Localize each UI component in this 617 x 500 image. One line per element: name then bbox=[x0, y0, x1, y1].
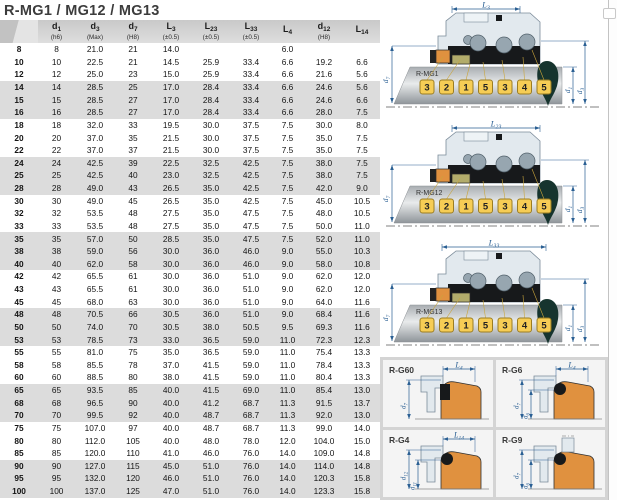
table-row: 606088.58038.041.559.011.080.413.3 bbox=[0, 371, 380, 384]
value-cell: 11.6 bbox=[344, 308, 380, 321]
column-header-L33: L33(±0.5) bbox=[231, 20, 271, 43]
value-cell: 41.2 bbox=[191, 397, 231, 410]
gasket bbox=[440, 384, 450, 400]
value-cell: 11.6 bbox=[344, 321, 380, 334]
svg-text:5: 5 bbox=[483, 321, 489, 332]
d1-dim-label: d1 bbox=[563, 325, 574, 332]
value-cell: 36.5 bbox=[191, 333, 231, 346]
spring-coil bbox=[496, 37, 512, 53]
size-cell: 42 bbox=[0, 270, 38, 283]
value-cell: 81.0 bbox=[75, 346, 115, 359]
value-cell: 68 bbox=[38, 397, 75, 410]
value-cell: 13.0 bbox=[344, 384, 380, 397]
value-cell: 10.5 bbox=[344, 207, 380, 220]
size-cell: 38 bbox=[0, 245, 38, 258]
value-cell: 28.4 bbox=[191, 94, 231, 107]
value-cell: 9.0 bbox=[271, 283, 304, 296]
svg-text:1: 1 bbox=[463, 321, 469, 332]
value-cell: 25.9 bbox=[191, 56, 231, 69]
size-cell: 10 bbox=[0, 56, 38, 69]
value-cell: 43 bbox=[38, 283, 75, 296]
value-cell: 41.5 bbox=[191, 384, 231, 397]
page-edge bbox=[608, 0, 617, 500]
table-row: 424265.56130.036.051.09.062.012.0 bbox=[0, 270, 380, 283]
value-cell: 38 bbox=[38, 245, 75, 258]
value-cell: 70 bbox=[115, 321, 151, 334]
value-cell: 14.0 bbox=[271, 485, 304, 498]
value-cell: 14.0 bbox=[344, 422, 380, 435]
value-cell: 32.0 bbox=[75, 119, 115, 132]
value-cell: 97 bbox=[115, 422, 151, 435]
svg-text:4: 4 bbox=[522, 202, 528, 213]
table-row: 282849.04326.535.042.57.542.09.0 bbox=[0, 182, 380, 195]
table-row: 686896.59040.041.268.711.391.513.7 bbox=[0, 397, 380, 410]
value-cell: 7.5 bbox=[271, 157, 304, 170]
value-cell: 48.0 bbox=[191, 434, 231, 447]
column-header-L23: L23(±0.5) bbox=[191, 20, 231, 43]
size-cell: 65 bbox=[0, 384, 38, 397]
value-cell: 59.0 bbox=[75, 245, 115, 258]
value-cell: 7.5 bbox=[344, 131, 380, 144]
seat-name: R-G60 bbox=[389, 365, 414, 375]
value-cell: 6.6 bbox=[271, 106, 304, 119]
table-row: 484870.56630.536.051.09.068.411.6 bbox=[0, 308, 380, 321]
svg-text:3: 3 bbox=[502, 83, 507, 94]
value-cell: 99.0 bbox=[304, 422, 344, 435]
value-cell: 37.5 bbox=[231, 144, 271, 157]
value-cell: 40.0 bbox=[151, 434, 191, 447]
size-cell: 28 bbox=[0, 182, 38, 195]
value-cell: 72.3 bbox=[304, 333, 344, 346]
value-cell: 15.8 bbox=[344, 472, 380, 485]
value-cell: 30.0 bbox=[191, 144, 231, 157]
value-cell: 80 bbox=[38, 434, 75, 447]
callout-badge: 5 bbox=[479, 80, 493, 94]
set-screw-boss bbox=[464, 132, 488, 141]
value-cell: 6.6 bbox=[271, 56, 304, 69]
value-cell: 115 bbox=[115, 460, 151, 473]
value-cell: 132.0 bbox=[75, 472, 115, 485]
length-dim-label: L23 bbox=[490, 119, 502, 131]
table-row: 555581.07535.036.559.011.075.413.3 bbox=[0, 346, 380, 359]
value-cell: 47.5 bbox=[231, 220, 271, 233]
seat-name: R-G6 bbox=[502, 365, 523, 375]
value-cell: 88.5 bbox=[75, 371, 115, 384]
value-cell: 37.5 bbox=[231, 119, 271, 132]
callout-badge: 3 bbox=[498, 199, 512, 213]
table-row: 505074.07030.538.050.59.569.311.6 bbox=[0, 321, 380, 334]
value-cell: 7.5 bbox=[271, 195, 304, 208]
value-cell bbox=[191, 43, 231, 56]
value-cell: 11.0 bbox=[271, 333, 304, 346]
value-cell: 25 bbox=[115, 81, 151, 94]
value-cell: 7.5 bbox=[271, 182, 304, 195]
value-cell: 12 bbox=[38, 68, 75, 81]
callout-badge: 3 bbox=[420, 199, 434, 213]
value-cell: 48 bbox=[38, 308, 75, 321]
value-cell: 36.0 bbox=[191, 245, 231, 258]
svg-text:1: 1 bbox=[463, 83, 469, 94]
o-ring bbox=[554, 383, 566, 395]
value-cell: 42.5 bbox=[231, 182, 271, 195]
value-cell bbox=[344, 43, 380, 56]
value-cell: 114.0 bbox=[304, 460, 344, 473]
value-cell: 15.8 bbox=[344, 485, 380, 498]
value-cell: 42.5 bbox=[75, 169, 115, 182]
svg-text:1: 1 bbox=[463, 202, 469, 213]
value-cell: 30.5 bbox=[151, 308, 191, 321]
value-cell: 56 bbox=[115, 245, 151, 258]
value-cell: 51.0 bbox=[191, 460, 231, 473]
value-cell: 65.5 bbox=[75, 270, 115, 283]
svg-text:2: 2 bbox=[444, 202, 449, 213]
table-row: 535378.57333.036.559.011.072.312.3 bbox=[0, 333, 380, 346]
value-cell: 40.0 bbox=[151, 422, 191, 435]
value-cell: 76.0 bbox=[231, 485, 271, 498]
value-cell: 38.0 bbox=[304, 169, 344, 182]
value-cell: 62.0 bbox=[304, 283, 344, 296]
value-cell: 12.3 bbox=[344, 333, 380, 346]
value-cell: 30.0 bbox=[191, 119, 231, 132]
size-cell: 8 bbox=[0, 43, 38, 56]
value-cell: 80 bbox=[115, 371, 151, 384]
callout-badge: 1 bbox=[459, 199, 473, 213]
value-cell: 74.0 bbox=[75, 321, 115, 334]
table-row: 222237.03721.530.037.57.535.07.5 bbox=[0, 144, 380, 157]
size-cell: 43 bbox=[0, 283, 38, 296]
size-cell: 40 bbox=[0, 258, 38, 271]
callout-badge: 4 bbox=[518, 80, 532, 94]
d1-dim-label: d1 bbox=[563, 87, 574, 94]
value-cell: 30.5 bbox=[151, 321, 191, 334]
value-cell: 58 bbox=[115, 258, 151, 271]
value-cell: 13.0 bbox=[344, 409, 380, 422]
value-cell: 65.5 bbox=[75, 283, 115, 296]
value-cell: 61 bbox=[115, 283, 151, 296]
table-row: 121225.02315.025.933.46.621.65.6 bbox=[0, 68, 380, 81]
table-row: 161628.52717.028.433.46.628.07.5 bbox=[0, 106, 380, 119]
diagram-name: R-MG1 bbox=[416, 71, 439, 78]
seat-diagram-r-g9: d7 d6R-G9 bbox=[496, 430, 606, 497]
seal-diagram-r-mg12: L23 d7 d1 d3 R-MG12 3 2 1 5 3 4 bbox=[380, 119, 608, 238]
value-cell: 42.5 bbox=[75, 157, 115, 170]
value-cell: 15.0 bbox=[151, 68, 191, 81]
seat-ring bbox=[436, 50, 450, 63]
side-dim-label: d7 bbox=[512, 403, 522, 410]
value-cell: 33.4 bbox=[231, 81, 271, 94]
seat-detail-grid: L4 d7R-G60 L4 d7 d6R-G6 L14 d12 d11R-G4 bbox=[380, 357, 608, 500]
svg-text:5: 5 bbox=[483, 202, 489, 213]
value-cell: 28 bbox=[38, 182, 75, 195]
o-ring bbox=[441, 453, 453, 465]
value-cell: 38.0 bbox=[151, 371, 191, 384]
size-cell: 35 bbox=[0, 232, 38, 245]
value-cell: 51.0 bbox=[231, 296, 271, 309]
value-cell: 32.5 bbox=[191, 169, 231, 182]
value-cell: 76.0 bbox=[231, 460, 271, 473]
value-cell: 9.5 bbox=[271, 321, 304, 334]
value-cell: 5.6 bbox=[344, 81, 380, 94]
callout-badge: 5 bbox=[537, 318, 551, 332]
callout-badge: 5 bbox=[479, 199, 493, 213]
value-cell: 26.5 bbox=[151, 182, 191, 195]
value-cell: 59.0 bbox=[231, 333, 271, 346]
value-cell: 19.2 bbox=[304, 56, 344, 69]
callout-badge: 3 bbox=[498, 80, 512, 94]
table-row: 7575107.09740.048.768.711.399.014.0 bbox=[0, 422, 380, 435]
value-cell: 42.5 bbox=[231, 169, 271, 182]
callout-badge: 5 bbox=[537, 199, 551, 213]
seat-name: R-G4 bbox=[389, 435, 410, 445]
value-cell: 6.6 bbox=[344, 94, 380, 107]
table-row: 101022.52114.525.933.46.619.26.6 bbox=[0, 56, 380, 69]
value-cell: 35.0 bbox=[304, 144, 344, 157]
value-cell: 52.0 bbox=[304, 232, 344, 245]
set-screw bbox=[496, 134, 502, 140]
value-cell: 28.5 bbox=[75, 106, 115, 119]
svg-text:3: 3 bbox=[424, 321, 429, 332]
value-cell: 35.0 bbox=[191, 232, 231, 245]
value-cell: 65 bbox=[38, 384, 75, 397]
seat-ring bbox=[436, 288, 450, 301]
value-cell: 125 bbox=[115, 485, 151, 498]
value-cell: 20 bbox=[38, 131, 75, 144]
value-cell: 37.5 bbox=[231, 131, 271, 144]
value-cell: 120.3 bbox=[304, 472, 344, 485]
value-cell: 46.0 bbox=[231, 245, 271, 258]
seat-cross-section: L4 d7 d6R-G6 bbox=[496, 360, 606, 427]
value-cell: 14.0 bbox=[271, 447, 304, 460]
value-cell: 13.3 bbox=[344, 371, 380, 384]
value-cell: 11.0 bbox=[271, 384, 304, 397]
value-cell: 95 bbox=[38, 472, 75, 485]
length-dim-label: L3 bbox=[481, 0, 490, 12]
size-cell: 55 bbox=[0, 346, 38, 359]
value-cell bbox=[231, 43, 271, 56]
value-cell: 62.0 bbox=[75, 258, 115, 271]
value-cell: 78.0 bbox=[231, 434, 271, 447]
value-cell: 78.4 bbox=[304, 359, 344, 372]
callout-badge: 3 bbox=[420, 318, 434, 332]
value-cell: 33.4 bbox=[231, 106, 271, 119]
value-cell: 42.5 bbox=[231, 195, 271, 208]
value-cell: 33.4 bbox=[231, 68, 271, 81]
value-cell: 69.3 bbox=[304, 321, 344, 334]
size-cell: 75 bbox=[0, 422, 38, 435]
value-cell: 14.0 bbox=[151, 43, 191, 56]
size-cell: 90 bbox=[0, 460, 38, 473]
dimension-table: d1(h6)d3(Max)d7(H8)L3(±0.5)L23(±0.5)L33(… bbox=[0, 20, 380, 498]
value-cell: 42.0 bbox=[304, 182, 344, 195]
value-cell: 78.5 bbox=[75, 333, 115, 346]
primary-ring bbox=[452, 293, 470, 302]
value-cell: 61 bbox=[115, 270, 151, 283]
value-cell: 137.0 bbox=[75, 485, 115, 498]
size-cell: 12 bbox=[0, 68, 38, 81]
callout-badge: 2 bbox=[440, 199, 454, 213]
value-cell: 23 bbox=[115, 68, 151, 81]
value-cell: 58 bbox=[38, 359, 75, 372]
value-cell: 33.4 bbox=[231, 56, 271, 69]
size-cell: 50 bbox=[0, 321, 38, 334]
value-cell: 49.0 bbox=[75, 182, 115, 195]
header-row: d1(h6)d3(Max)d7(H8)L3(±0.5)L23(±0.5)L33(… bbox=[0, 20, 380, 43]
value-cell: 112.0 bbox=[75, 434, 115, 447]
size-cell: 85 bbox=[0, 447, 38, 460]
svg-text:3: 3 bbox=[502, 321, 507, 332]
value-cell: 30.0 bbox=[151, 245, 191, 258]
value-cell: 45 bbox=[115, 195, 151, 208]
value-cell: 90 bbox=[115, 397, 151, 410]
seat-diagram-r-g4: L14 d12 d11R-G4 bbox=[383, 430, 493, 497]
svg-text:5: 5 bbox=[541, 83, 547, 94]
value-cell: 9.0 bbox=[271, 270, 304, 283]
value-cell: 99.5 bbox=[75, 409, 115, 422]
size-cell: 68 bbox=[0, 397, 38, 410]
value-cell: 45.0 bbox=[304, 195, 344, 208]
value-cell: 48.0 bbox=[304, 207, 344, 220]
table-row: 141428.52517.028.433.46.624.65.6 bbox=[0, 81, 380, 94]
shaft-dim-label: d7 bbox=[381, 315, 392, 322]
seat-diagram-r-g6: L4 d7 d6R-G6 bbox=[496, 360, 606, 427]
seat-cross-section: L4 d7R-G60 bbox=[383, 360, 493, 427]
seat-cross-section: L14 d12 d11R-G4 bbox=[383, 430, 493, 497]
value-cell: 50.5 bbox=[231, 321, 271, 334]
callout-badge: 3 bbox=[498, 318, 512, 332]
size-cell: 53 bbox=[0, 333, 38, 346]
value-cell: 75 bbox=[38, 422, 75, 435]
size-cell: 20 bbox=[0, 131, 38, 144]
value-cell: 11.6 bbox=[344, 296, 380, 309]
value-cell: 27 bbox=[115, 106, 151, 119]
value-cell: 35.0 bbox=[191, 195, 231, 208]
value-cell: 10.5 bbox=[344, 195, 380, 208]
value-cell: 49.0 bbox=[75, 195, 115, 208]
value-cell: 33.0 bbox=[151, 333, 191, 346]
value-cell: 37.0 bbox=[151, 359, 191, 372]
value-cell: 36.5 bbox=[191, 346, 231, 359]
side-dim-label: d7 bbox=[512, 473, 522, 480]
catalog-page: R-MG1 / MG12 / MG13 d1(h6)d3(Max)d7(H8)L… bbox=[0, 0, 617, 500]
value-cell: 9.0 bbox=[271, 258, 304, 271]
value-cell: 27.5 bbox=[151, 220, 191, 233]
value-cell: 9.0 bbox=[271, 308, 304, 321]
value-cell: 28.5 bbox=[75, 81, 115, 94]
d1-dim-label: d1 bbox=[563, 206, 574, 213]
value-cell: 55 bbox=[38, 346, 75, 359]
value-cell: 30.0 bbox=[191, 131, 231, 144]
column-header-d12: d12(H8) bbox=[304, 20, 344, 43]
d3-dim-label: d3 bbox=[575, 207, 586, 214]
value-cell: 123.3 bbox=[304, 485, 344, 498]
seat-cross-section: d7 d6R-G9 bbox=[496, 430, 606, 497]
seal-diagram-r-mg13: L33 d7 d1 d3 R-MG13 3 2 1 5 3 4 bbox=[380, 238, 608, 357]
value-cell: 50.0 bbox=[304, 220, 344, 233]
value-cell: 22 bbox=[38, 144, 75, 157]
top-dim-label: L14 bbox=[453, 431, 464, 442]
value-cell: 127.0 bbox=[75, 460, 115, 473]
spring-coil bbox=[519, 153, 535, 169]
table-header: d1(h6)d3(Max)d7(H8)L3(±0.5)L23(±0.5)L33(… bbox=[0, 20, 380, 43]
table-row: 202037.03521.530.037.57.535.07.5 bbox=[0, 131, 380, 144]
column-header-d7: d7(H8) bbox=[115, 20, 151, 43]
value-cell: 40 bbox=[115, 169, 151, 182]
svg-text:5: 5 bbox=[541, 321, 547, 332]
table-row: 303049.04526.535.042.57.545.010.5 bbox=[0, 195, 380, 208]
table-row: 585885.57837.041.559.011.078.413.3 bbox=[0, 359, 380, 372]
table-row: 333353.54827.535.047.57.550.011.0 bbox=[0, 220, 380, 233]
callout-badge: 5 bbox=[479, 318, 493, 332]
value-cell: 30 bbox=[38, 195, 75, 208]
column-header-L3: L3(±0.5) bbox=[151, 20, 191, 43]
value-cell: 28.4 bbox=[191, 81, 231, 94]
svg-text:2: 2 bbox=[444, 83, 449, 94]
value-cell: 48.7 bbox=[191, 422, 231, 435]
value-cell: 51.0 bbox=[191, 472, 231, 485]
value-cell: 10.8 bbox=[344, 258, 380, 271]
table-row: 9595132.012046.051.076.014.0120.315.8 bbox=[0, 472, 380, 485]
size-cell: 80 bbox=[0, 434, 38, 447]
table-row: 8821.02114.06.0 bbox=[0, 43, 380, 56]
value-cell: 51.0 bbox=[231, 270, 271, 283]
value-cell: 50 bbox=[38, 321, 75, 334]
size-cell: 48 bbox=[0, 308, 38, 321]
set-screw-boss bbox=[464, 13, 488, 22]
value-cell: 43 bbox=[115, 182, 151, 195]
side-dim-label: d12 bbox=[400, 471, 410, 480]
value-cell: 27.5 bbox=[151, 207, 191, 220]
value-cell: 48 bbox=[115, 207, 151, 220]
svg-text:2: 2 bbox=[444, 321, 449, 332]
value-cell: 28.0 bbox=[304, 106, 344, 119]
seal-cross-section: L23 d7 d1 d3 R-MG12 3 2 1 5 3 4 bbox=[380, 119, 608, 238]
table-row: 242442.53922.532.542.57.538.07.5 bbox=[0, 157, 380, 170]
value-cell: 63 bbox=[115, 296, 151, 309]
set-screw bbox=[496, 15, 502, 21]
value-cell: 92.0 bbox=[304, 409, 344, 422]
value-cell: 7.5 bbox=[271, 131, 304, 144]
table-row: 707099.59240.048.768.711.392.013.0 bbox=[0, 409, 380, 422]
callout-badge: 1 bbox=[459, 318, 473, 332]
value-cell: 73 bbox=[115, 333, 151, 346]
value-cell: 39 bbox=[115, 157, 151, 170]
value-cell: 85.4 bbox=[304, 384, 344, 397]
value-cell: 38.0 bbox=[304, 157, 344, 170]
value-cell: 40.0 bbox=[151, 409, 191, 422]
value-cell: 8 bbox=[38, 43, 75, 56]
value-cell: 23.0 bbox=[151, 169, 191, 182]
value-cell: 30.0 bbox=[304, 119, 344, 132]
value-cell: 53.5 bbox=[75, 220, 115, 233]
value-cell: 51.0 bbox=[231, 308, 271, 321]
value-cell: 11.0 bbox=[344, 232, 380, 245]
spring-coil bbox=[519, 272, 535, 288]
svg-text:3: 3 bbox=[424, 83, 429, 94]
table-row: 323253.54827.535.047.57.548.010.5 bbox=[0, 207, 380, 220]
size-cell: 100 bbox=[0, 485, 38, 498]
shaft-dim-label: d7 bbox=[381, 196, 392, 203]
value-cell: 16 bbox=[38, 106, 75, 119]
value-cell: 11.0 bbox=[271, 371, 304, 384]
value-cell: 15.0 bbox=[344, 434, 380, 447]
value-cell: 51.0 bbox=[191, 485, 231, 498]
value-cell: 6.6 bbox=[271, 68, 304, 81]
value-cell bbox=[304, 43, 344, 56]
value-cell: 33 bbox=[115, 119, 151, 132]
value-cell: 41.5 bbox=[191, 359, 231, 372]
spring-coil bbox=[470, 273, 486, 289]
value-cell: 92 bbox=[115, 409, 151, 422]
